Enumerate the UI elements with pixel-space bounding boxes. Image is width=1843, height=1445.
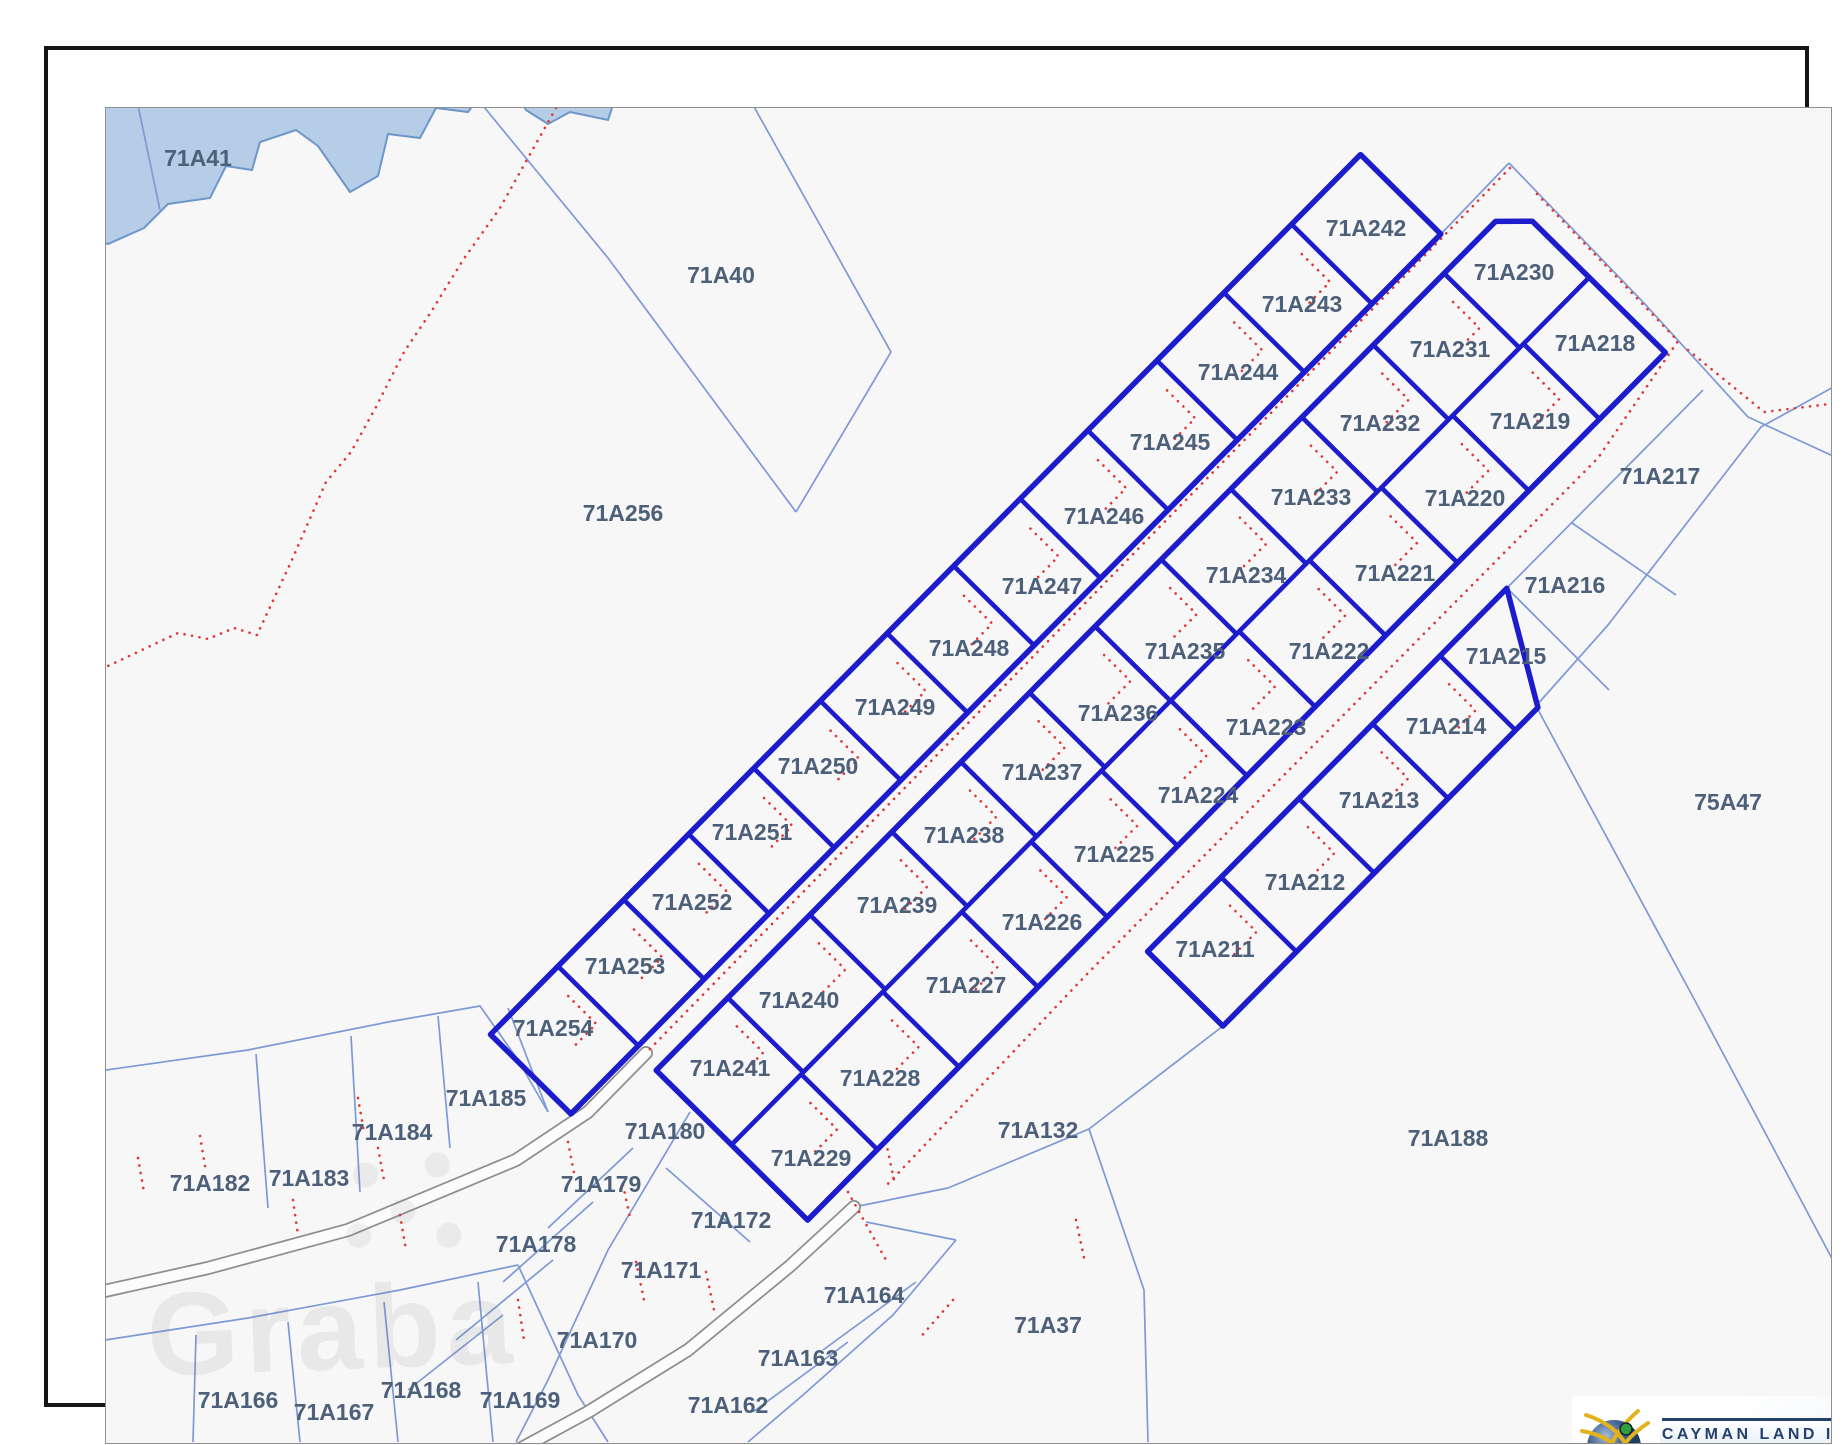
parcel-label: 71A237 [1002,759,1083,785]
cayman-land-info-logo: CAYMAN LAND INFO www.caymanlandinfo.ky [1572,1396,1832,1444]
parcel-label: 71A183 [269,1165,350,1191]
parcel-label: 71A184 [352,1119,433,1145]
parcel-label: 71A222 [1289,638,1370,664]
parcel-label: 71A220 [1425,485,1506,511]
parcel-label: 71A248 [929,635,1010,661]
parcel-label: 71A244 [1198,359,1279,385]
parcel-label: 71A252 [652,889,733,915]
parcel-label: 71A41 [164,145,232,171]
parcel-label: 71A239 [857,892,938,918]
parcel-label: 71A226 [1002,909,1083,935]
parcel-label: 71A216 [1525,572,1606,598]
parcel-label: 71A240 [759,987,840,1013]
parcel-label: 71A241 [690,1055,771,1081]
parcel-label: 71A256 [583,500,664,526]
parcel-label: 71A229 [771,1145,852,1171]
parcel-label: 71A180 [625,1118,706,1144]
parcel-label: 71A169 [480,1387,561,1413]
parcel-label: 71A213 [1339,787,1420,813]
map-frame-border: 71A4171A4071A25671A24271A23071A24371A231… [44,46,1809,1407]
parcel-label: 71A228 [840,1065,921,1091]
parcel-label: 71A214 [1406,713,1487,739]
parcel-label: 71A225 [1074,841,1155,867]
parcel-label: 71A179 [561,1171,642,1197]
parcel-label: 71A132 [998,1117,1079,1143]
parcel-label: 71A230 [1474,259,1555,285]
parcel-label: 71A246 [1064,503,1145,529]
parcel-label: 71A188 [1408,1125,1489,1151]
parcel-label: 71A164 [824,1282,905,1308]
parcel-label: 71A235 [1145,638,1226,664]
parcel-label: 71A247 [1002,573,1083,599]
parcel-label: 71A254 [513,1015,594,1041]
parcel-label: 71A243 [1262,291,1343,317]
parcel-label: 71A238 [924,822,1005,848]
parcel-label: 71A234 [1206,562,1287,588]
parcel-label: 71A162 [688,1392,769,1418]
parcel-label: 71A163 [758,1345,839,1371]
parcel-label: 71A236 [1078,700,1159,726]
logo-title: CAYMAN LAND INFO [1660,1421,1832,1444]
parcel-label: 71A224 [1158,782,1239,808]
parcel-label: 71A253 [585,953,666,979]
parcel-label: 71A40 [687,262,755,288]
map-page: 71A4171A4071A25671A24271A23071A24371A231… [0,0,1843,1445]
parcel-label: 71A178 [496,1231,577,1257]
parcel-label: 71A219 [1490,408,1571,434]
logo-text-block: CAYMAN LAND INFO www.caymanlandinfo.ky [1660,1418,1832,1444]
parcel-label: 71A223 [1226,714,1307,740]
parcel-label: 71A251 [712,819,793,845]
parcel-label: 71A221 [1355,560,1436,586]
parcel-label: 71A212 [1265,869,1346,895]
parcel-label: 71A233 [1271,484,1352,510]
parcel-label: 71A227 [926,972,1007,998]
parcel-label: 71A172 [691,1207,772,1233]
parcel-label: 71A168 [381,1377,462,1403]
parcel-label: 71A182 [170,1170,251,1196]
parcel-label: 71A185 [446,1085,527,1111]
parcel-label: 71A245 [1130,429,1211,455]
parcel-label: 71A218 [1555,330,1636,356]
parcel-label: 71A217 [1620,463,1701,489]
parcel-label: 71A166 [198,1387,279,1413]
parcel-label: 71A231 [1410,336,1491,362]
parcel-label: 71A242 [1326,215,1407,241]
parcel-label: 71A167 [294,1399,375,1425]
parcel-label: 71A250 [778,753,859,779]
parcel-label: 71A211 [1175,936,1255,962]
parcel-label: 71A171 [621,1257,702,1283]
map-viewport: 71A4171A4071A25671A24271A23071A24371A231… [105,107,1832,1444]
parcel-label: 71A170 [557,1327,638,1353]
globe-icon [1574,1397,1660,1444]
map-canvas[interactable]: 71A4171A4071A25671A24271A23071A24371A231… [105,107,1832,1444]
parcel-label: 71A232 [1340,410,1421,436]
parcel-label: 71A215 [1466,643,1547,669]
parcel-label: 71A37 [1014,1312,1082,1338]
parcel-label: 75A47 [1694,789,1762,815]
parcel-label: 71A249 [855,694,936,720]
